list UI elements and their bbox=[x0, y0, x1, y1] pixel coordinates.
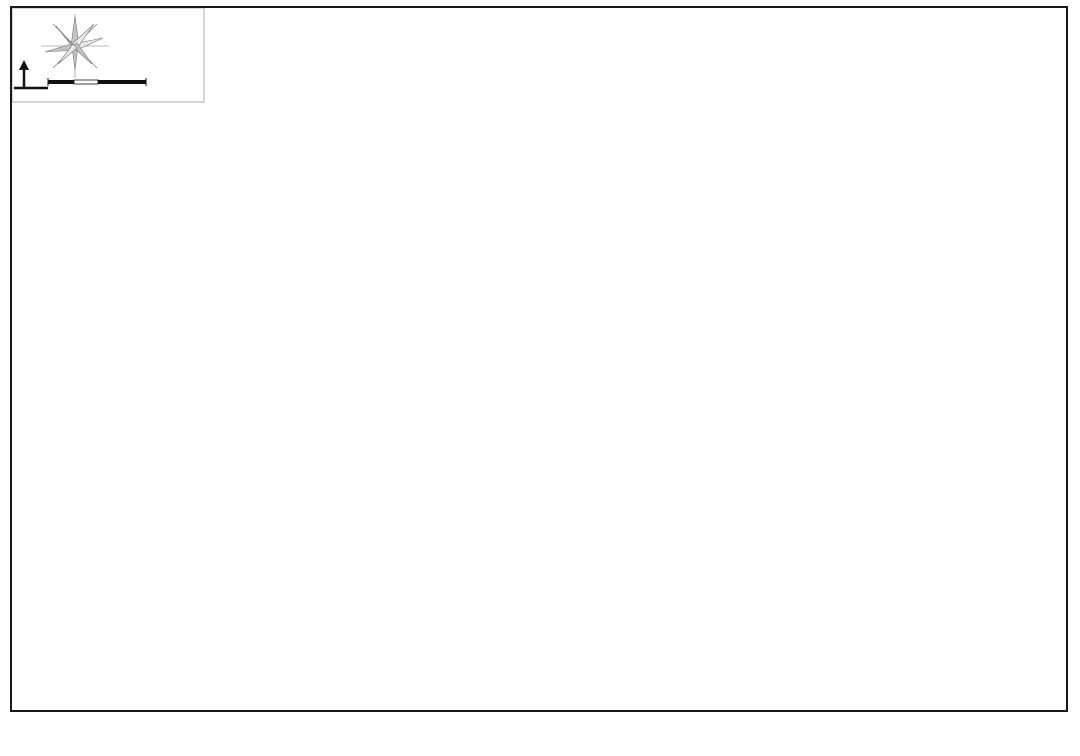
title-bar bbox=[10, 710, 1068, 746]
compass-scale-panel bbox=[0, 0, 220, 115]
map-page: { "title": "九里亭街道行政区域图", "compass": { "n… bbox=[0, 0, 1080, 756]
